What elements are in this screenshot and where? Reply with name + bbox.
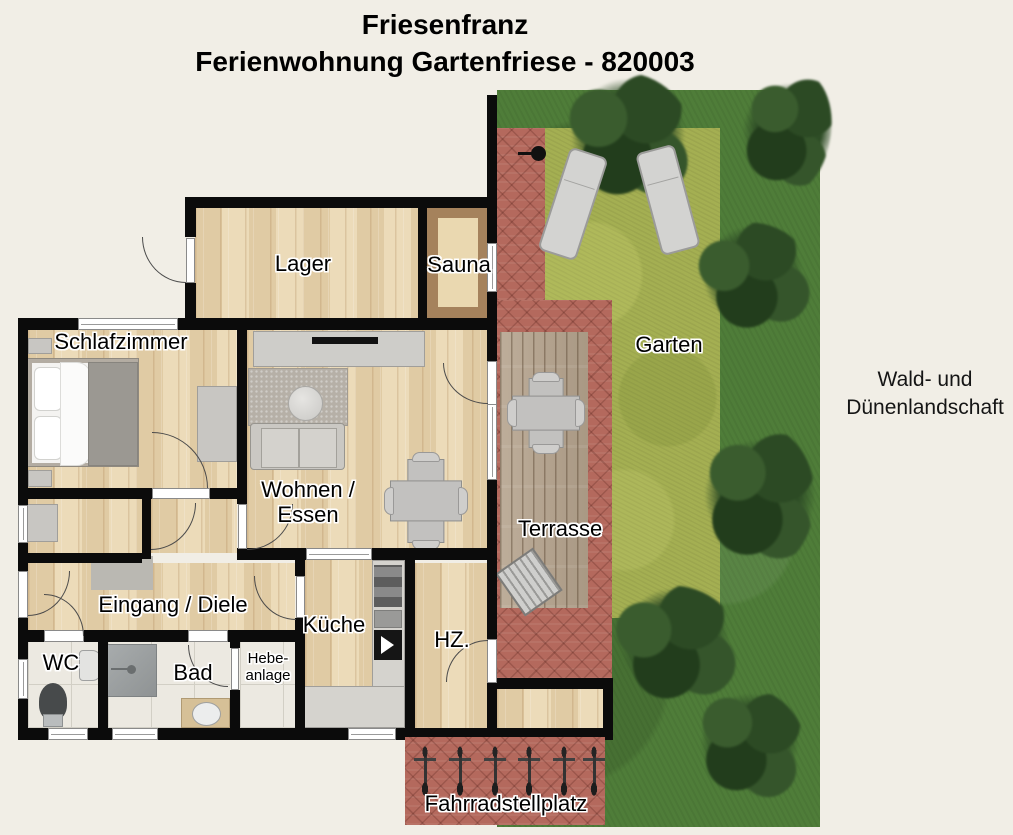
nightstand (28, 470, 52, 487)
tv-icon (312, 337, 378, 344)
wall (185, 197, 196, 237)
toilet-icon (43, 714, 63, 727)
arrow-icon (381, 636, 403, 654)
wall (185, 318, 497, 330)
sofa-icon (250, 423, 345, 470)
pillow (34, 367, 62, 411)
wall (372, 548, 497, 560)
table-top (512, 396, 579, 431)
door (487, 361, 497, 405)
wall (88, 728, 112, 740)
floor-plan-canvas: Lager Sauna Schlafzimmer Wohnen / Essen … (0, 0, 1013, 835)
chair-icon (412, 452, 440, 462)
sofa-cushion (261, 428, 299, 468)
plan-title: Friesenfranz Ferienwohnung Gartenfriese … (0, 6, 890, 80)
label-terrasse: Terrasse (518, 516, 602, 541)
wall (158, 728, 348, 740)
duvet (60, 362, 91, 466)
wall (228, 630, 305, 642)
shower-icon (104, 644, 157, 697)
nightstand (28, 338, 52, 354)
label-wohnen-essen: Wohnen / Essen (261, 477, 355, 528)
window (18, 505, 28, 543)
water-pump-icon (531, 146, 546, 161)
label-sauna: Sauna (427, 252, 491, 277)
window (18, 659, 28, 699)
shower-arm (111, 668, 129, 670)
wall (18, 728, 48, 740)
wall (210, 488, 237, 499)
wall (18, 330, 28, 505)
wall (84, 630, 188, 642)
hall-cabinet (24, 504, 58, 542)
pillow (34, 416, 62, 460)
wardrobe-icon (197, 386, 237, 462)
wall (142, 499, 151, 559)
window (487, 404, 497, 480)
wall (18, 553, 142, 563)
washbasin-icon (192, 702, 221, 726)
outdoor-dining-table (507, 372, 585, 454)
label-eingang-diele: Eingang / Diele (98, 592, 247, 617)
label-hz: HZ. (434, 627, 469, 652)
dining-table-icon (384, 452, 468, 550)
door-swing (142, 237, 186, 283)
wall (18, 630, 44, 642)
door (238, 504, 247, 549)
stove-icon (374, 565, 402, 607)
wall (295, 558, 305, 576)
wall (487, 678, 613, 689)
label-wc: WC (43, 650, 80, 675)
wall (487, 197, 497, 243)
entrance-door (18, 571, 28, 618)
kitchen-sink (374, 610, 402, 628)
wall (185, 197, 497, 208)
door (186, 238, 195, 283)
wall (98, 642, 108, 737)
wall (18, 488, 152, 499)
dishwasher-icon (374, 630, 402, 660)
label-bad: Bad (173, 660, 212, 685)
window (48, 728, 88, 740)
coffee-table-icon (288, 386, 323, 421)
wall (487, 330, 497, 361)
window (112, 728, 158, 740)
label-lager: Lager (275, 251, 331, 276)
door (231, 648, 239, 690)
label-kueche: Küche (303, 612, 365, 637)
label-garten: Garten (635, 332, 702, 357)
title-line-2: Ferienwohnung Gartenfriese - 820003 (0, 43, 890, 80)
label-surroundings: Wald- und Dünenlandschaft (846, 366, 1004, 422)
label-fahrradstellplatz: Fahrradstellplatz (425, 791, 588, 816)
door (152, 488, 210, 499)
door (487, 639, 497, 683)
chair-icon (507, 399, 517, 427)
wall (405, 558, 415, 737)
label-schlafzimmer: Schlafzimmer (54, 329, 187, 354)
window (306, 548, 372, 560)
chair-icon (532, 444, 560, 454)
table-top (390, 480, 462, 521)
sofa-cushion (299, 428, 337, 468)
annex-floor (497, 689, 603, 728)
chair-icon (458, 487, 468, 515)
garden-fence (487, 95, 497, 197)
title-line-1: Friesenfranz (0, 6, 890, 43)
chair-icon (532, 372, 560, 382)
wall (418, 207, 427, 330)
bed-icon (27, 358, 139, 467)
window (348, 728, 396, 740)
chair-icon (575, 399, 585, 427)
wall (237, 318, 247, 504)
chair-icon (384, 487, 394, 515)
kitchen-counter-icon (298, 686, 405, 728)
door (188, 630, 228, 642)
label-hebeanlage: Hebe- anlage (245, 650, 290, 685)
blanket (88, 362, 138, 466)
